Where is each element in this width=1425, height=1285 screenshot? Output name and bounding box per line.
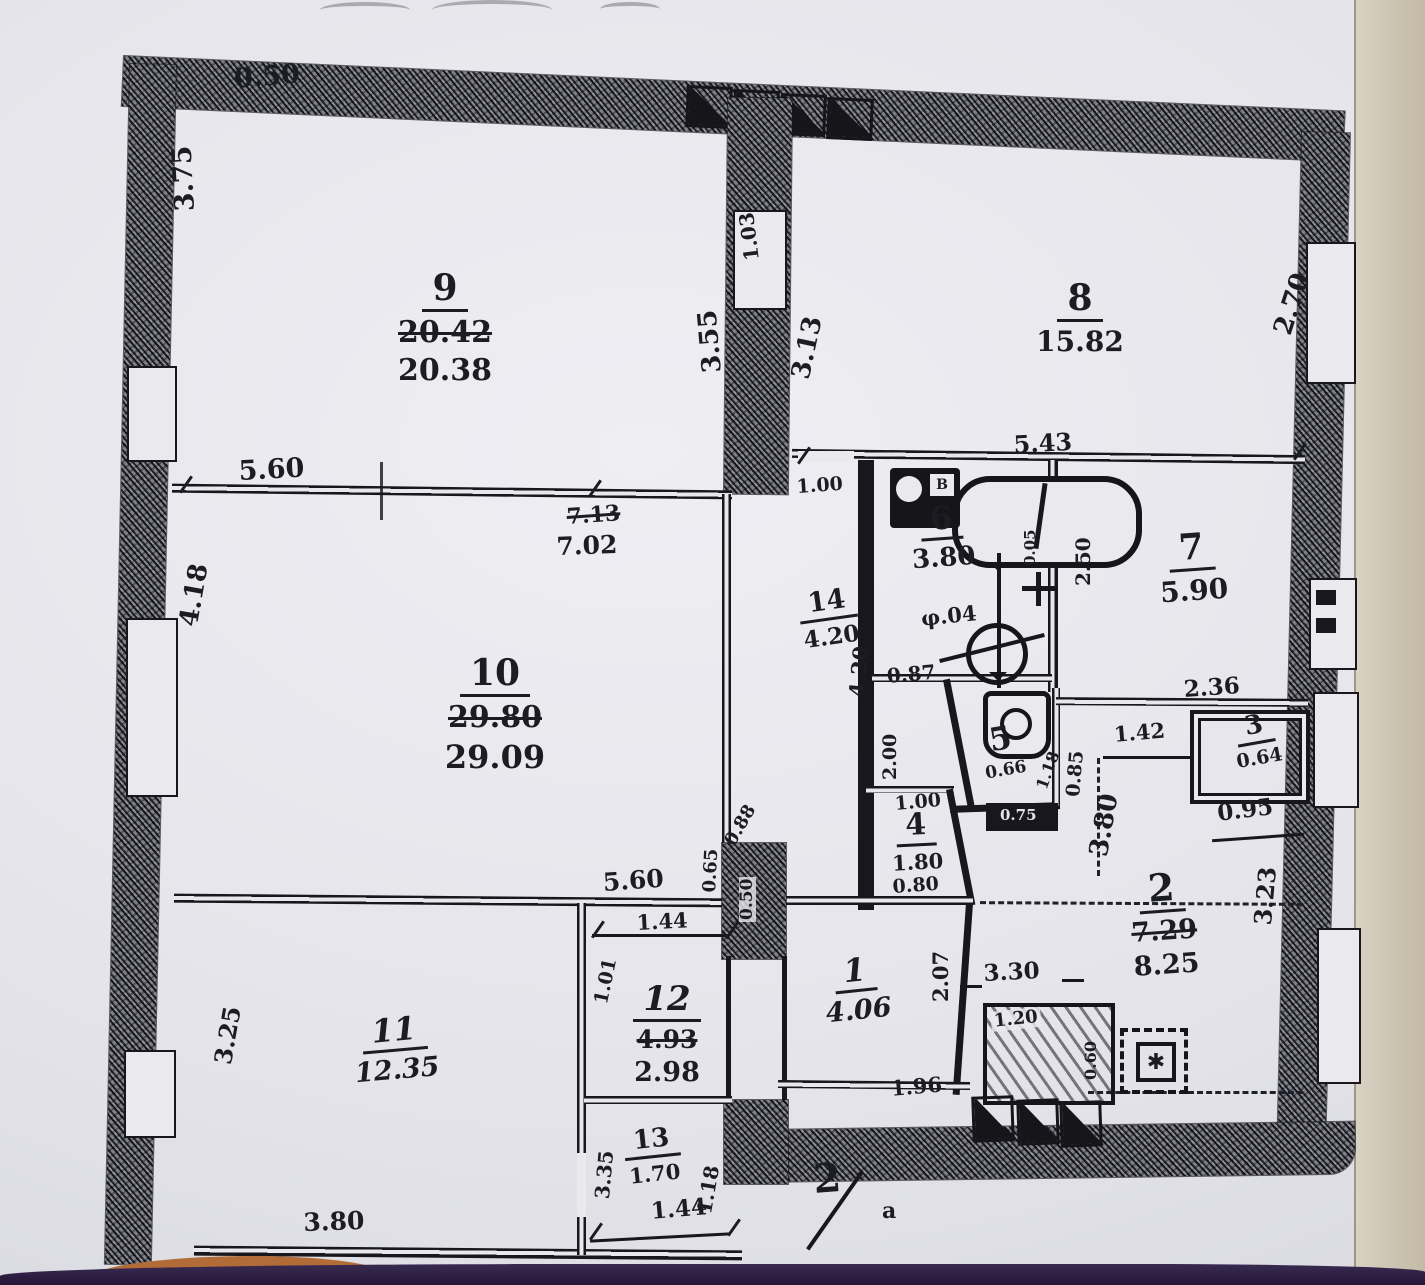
wall-10-11-divider — [174, 894, 730, 908]
room-number: 13 — [622, 1123, 681, 1160]
dim-room10-top-crossed: 7.13 — [566, 502, 621, 528]
dim-room11-left: 3.25 — [211, 1004, 245, 1066]
dim-room2-right: 3.23 — [1251, 866, 1280, 926]
dim-partition-left: 3.55 — [694, 309, 725, 374]
wall-room7-bottom — [1056, 697, 1308, 707]
dim-bath-bottom: 0.87 — [886, 662, 936, 686]
room-area: 15.82 — [1025, 325, 1135, 358]
dim-room1-bottom: 1.96 — [890, 1074, 943, 1099]
room-number: 2 — [1137, 867, 1186, 914]
dim-line — [1103, 756, 1191, 759]
room-13-label: 13 1.70 — [615, 1123, 691, 1190]
dim-hall-opening: 1.00 — [796, 475, 843, 497]
duct-block — [724, 1100, 788, 1184]
dim-partition-right: 3.13 — [788, 314, 827, 381]
dim-balcony-width: 3.30 — [983, 959, 1040, 985]
scan-artifact-purple — [0, 1264, 1425, 1285]
window-hatch-mark — [1316, 618, 1336, 633]
dim-bath-offset: 0.05 — [1023, 529, 1038, 566]
dim-room4-top: 1.00 — [894, 791, 942, 814]
dim-room7-bottom: 2.36 — [1183, 674, 1240, 701]
room-10-label: 10 29.80 29.09 — [435, 655, 555, 776]
basin-mark: B — [930, 474, 954, 496]
stair-triangle-icon — [1016, 1098, 1060, 1145]
room-number: 6 — [919, 501, 964, 541]
dim-dash — [1062, 979, 1084, 982]
room-number: 8 — [1057, 280, 1102, 322]
room-number: 7 — [1167, 528, 1215, 573]
window-hatch-mark — [1316, 590, 1336, 605]
shaft-wall — [726, 956, 731, 1106]
stair-triangle-icon — [1059, 1100, 1103, 1147]
stove-mark-icon: ✱ — [1136, 1042, 1176, 1082]
room-area: 1.70 — [619, 1157, 691, 1189]
dim-partition-door: 1.03 — [736, 211, 762, 262]
sheet-suffix: a — [882, 1200, 896, 1222]
dim-room13-right: 1.18 — [694, 1164, 722, 1215]
room-11-label: 11 12.35 — [345, 1010, 446, 1090]
room-area: 5.90 — [1153, 571, 1235, 610]
dim-room4-bottom: 0.80 — [892, 875, 939, 897]
room-area: 8.25 — [1121, 946, 1213, 983]
room-number: 11 — [360, 1011, 428, 1054]
dim-room12-left: 1.01 — [592, 957, 620, 1006]
room-number: 3 — [1233, 709, 1276, 747]
room-2-label: 2 7.29 8.25 — [1115, 866, 1213, 984]
dim-dash — [960, 985, 982, 988]
dim-room3-bottom: 0.95 — [1216, 795, 1274, 825]
room-area: 3.80 — [903, 540, 985, 576]
dim-left-upper: 3.75 — [169, 145, 199, 212]
dim-room4-left: 2.00 — [881, 734, 900, 780]
room-number: 14 — [796, 584, 858, 624]
dim-cross-mark — [380, 462, 383, 520]
wall-room1-top — [777, 896, 973, 905]
stair-triangle-icon — [685, 85, 733, 129]
window-right-4 — [1317, 928, 1361, 1084]
room-area-crossed: 20.42 — [390, 315, 500, 350]
room-number: 5 — [977, 719, 1025, 760]
floor-plan-scan: B ✱ 9 20.42 20.38 8 15.82 10 29.80 29.09… — [0, 0, 1425, 1285]
room-area: 12.35 — [349, 1050, 446, 1089]
dim-duct-left: 0.65 — [701, 848, 721, 893]
room-7-label: 7 5.90 — [1150, 526, 1235, 609]
room-number: 4 — [895, 809, 938, 847]
pipe-arrow-icon — [989, 562, 1007, 580]
dim-room1-right: 2.07 — [930, 951, 951, 1002]
cross-mark — [1036, 572, 1041, 606]
dim-line — [590, 1232, 730, 1242]
stove-box: ✱ — [1120, 1028, 1188, 1094]
room-area-crossed: 7.29 — [1118, 912, 1210, 949]
dim-room12-top: 1.44 — [636, 909, 688, 933]
dim-corridor-height: 4.20 — [846, 645, 871, 698]
dim-room8-bottom: 5.43 — [1013, 430, 1073, 457]
room-number: 1 — [832, 952, 878, 994]
window-right-3 — [1313, 692, 1359, 808]
top-scribble — [432, 0, 552, 20]
dim-balcony-side: 0.60 — [1083, 1041, 1099, 1080]
window-left-3 — [124, 1050, 176, 1138]
dim-wc-left: 0.85 — [1064, 750, 1087, 798]
dim-room11-top: 5.60 — [602, 866, 664, 895]
top-scribble — [600, 2, 660, 16]
door-opening-room13 — [577, 1153, 586, 1217]
wall-1-2-divider — [953, 903, 973, 1095]
room-14-label: 14 4.20 — [795, 584, 863, 654]
dim-room9-bottom: 5.60 — [238, 455, 305, 485]
room-area-crossed: 4.93 — [622, 1025, 712, 1054]
stair-triangle-icon — [826, 97, 874, 141]
dim-top-width: 0.50 — [233, 60, 301, 93]
room-4-label: 4 1.80 — [885, 809, 948, 876]
room-3-label: 3 0.64 — [1222, 708, 1291, 774]
top-scribble — [320, 2, 410, 18]
dim-room7-left: 2.50 — [1073, 537, 1093, 586]
room-area-crossed: 29.80 — [435, 700, 555, 735]
room-8-label: 8 15.82 — [1025, 280, 1135, 358]
wall-wc-right — [1052, 688, 1060, 806]
room-area: 20.38 — [390, 353, 500, 388]
dim-hall-width: 1.42 — [1113, 720, 1166, 745]
room-area: 4.06 — [822, 991, 895, 1029]
room-1-label: 1 4.06 — [818, 951, 895, 1030]
dim-room13-left: 3.35 — [592, 1149, 616, 1199]
dim-room2-left: 3.80 — [1086, 792, 1123, 859]
wall-room10-right — [722, 494, 731, 846]
room-9-label: 9 20.42 20.38 — [390, 270, 500, 388]
dim-tick — [589, 1222, 603, 1240]
wall-12-13-divider — [584, 1096, 732, 1104]
dim-wc-bottom: 0.75 — [1000, 808, 1037, 823]
dim-meter-dia: φ.04 — [920, 602, 977, 629]
dim-left-mid: 4.18 — [176, 562, 213, 629]
room-area: 1.80 — [887, 847, 948, 875]
dim-room10-top: 7.02 — [556, 532, 618, 559]
room-12-label: 12 4.93 2.98 — [622, 982, 712, 1088]
page-edge — [1354, 0, 1425, 1285]
room-area: 2.98 — [622, 1057, 712, 1088]
room-number: 10 — [460, 655, 530, 697]
dim-tick — [727, 1218, 741, 1236]
room-5-label: 5 0.66 — [968, 718, 1037, 785]
room-area: 29.09 — [435, 738, 555, 776]
dim-duct-inner: 0.50 — [739, 877, 756, 922]
sheet-number: 2 — [812, 1158, 843, 1200]
window-left-2 — [126, 618, 178, 797]
window-right-1 — [1306, 242, 1356, 384]
dim-line — [592, 934, 728, 937]
room-6-label: 6 3.80 — [900, 499, 985, 575]
room-number: 9 — [422, 270, 467, 312]
window-left-1 — [127, 366, 177, 462]
room-number: 12 — [633, 982, 700, 1022]
basin-bowl — [896, 476, 922, 502]
dim-room11-bottom: 3.80 — [303, 1208, 365, 1235]
